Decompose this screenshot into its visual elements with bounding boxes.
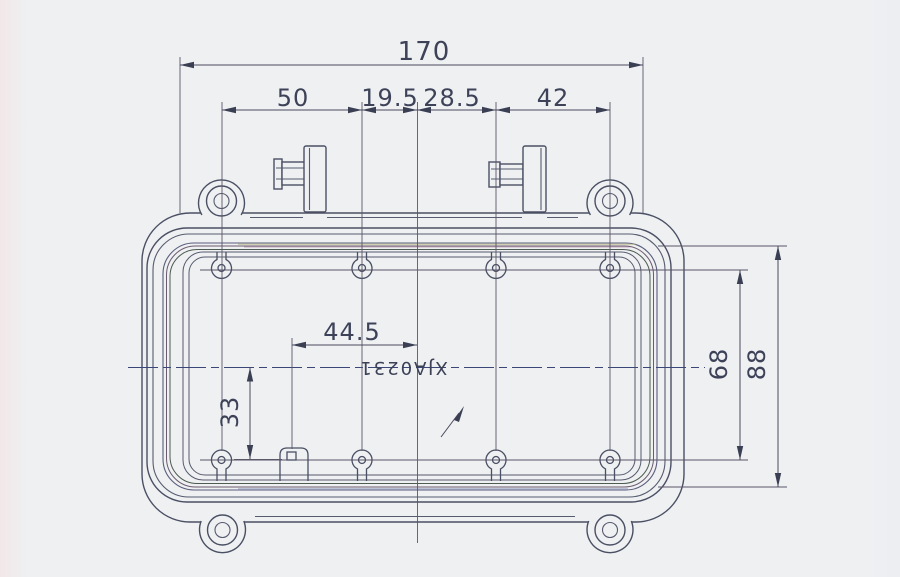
screw-boss-row-top [212, 252, 621, 278]
cable-gland-left [274, 146, 326, 212]
mounting-ear-bottom-right [587, 515, 633, 553]
dimension-inner-offset-x: 44.5 [292, 318, 417, 449]
scanned-technical-drawing: XJA0231 170 50 19.5 28.5 42 [0, 0, 900, 577]
centerlines [128, 102, 705, 543]
svg-text:42: 42 [537, 84, 570, 112]
svg-text:33: 33 [216, 396, 244, 429]
dimension-boss-row-height: 68 [705, 270, 743, 460]
svg-text:68: 68 [705, 348, 733, 381]
svg-text:170: 170 [398, 37, 451, 67]
svg-text:88: 88 [743, 348, 771, 381]
leader-arrow [441, 406, 464, 437]
svg-text:28.5: 28.5 [423, 84, 480, 112]
boss-row-lines [200, 270, 748, 460]
terminal-boss [280, 448, 308, 481]
dimension-overall-width: 170 [180, 37, 643, 213]
screw-boss-row-bottom [212, 450, 621, 481]
mounting-ear-bottom-left [200, 515, 246, 553]
svg-text:50: 50 [277, 84, 310, 112]
dimension-inner-offset-y: 33 [216, 368, 282, 460]
enclosure-drawing-canvas: XJA0231 170 50 19.5 28.5 42 [0, 0, 900, 577]
cable-gland-right [489, 146, 546, 212]
svg-text:44.5: 44.5 [323, 318, 380, 346]
part-number-text: XJA0231 [358, 357, 447, 378]
svg-text:19.5: 19.5 [361, 84, 418, 112]
mounting-ear-top-left [198, 180, 244, 216]
dimension-top-chain: 50 19.5 28.5 42 [222, 84, 610, 451]
